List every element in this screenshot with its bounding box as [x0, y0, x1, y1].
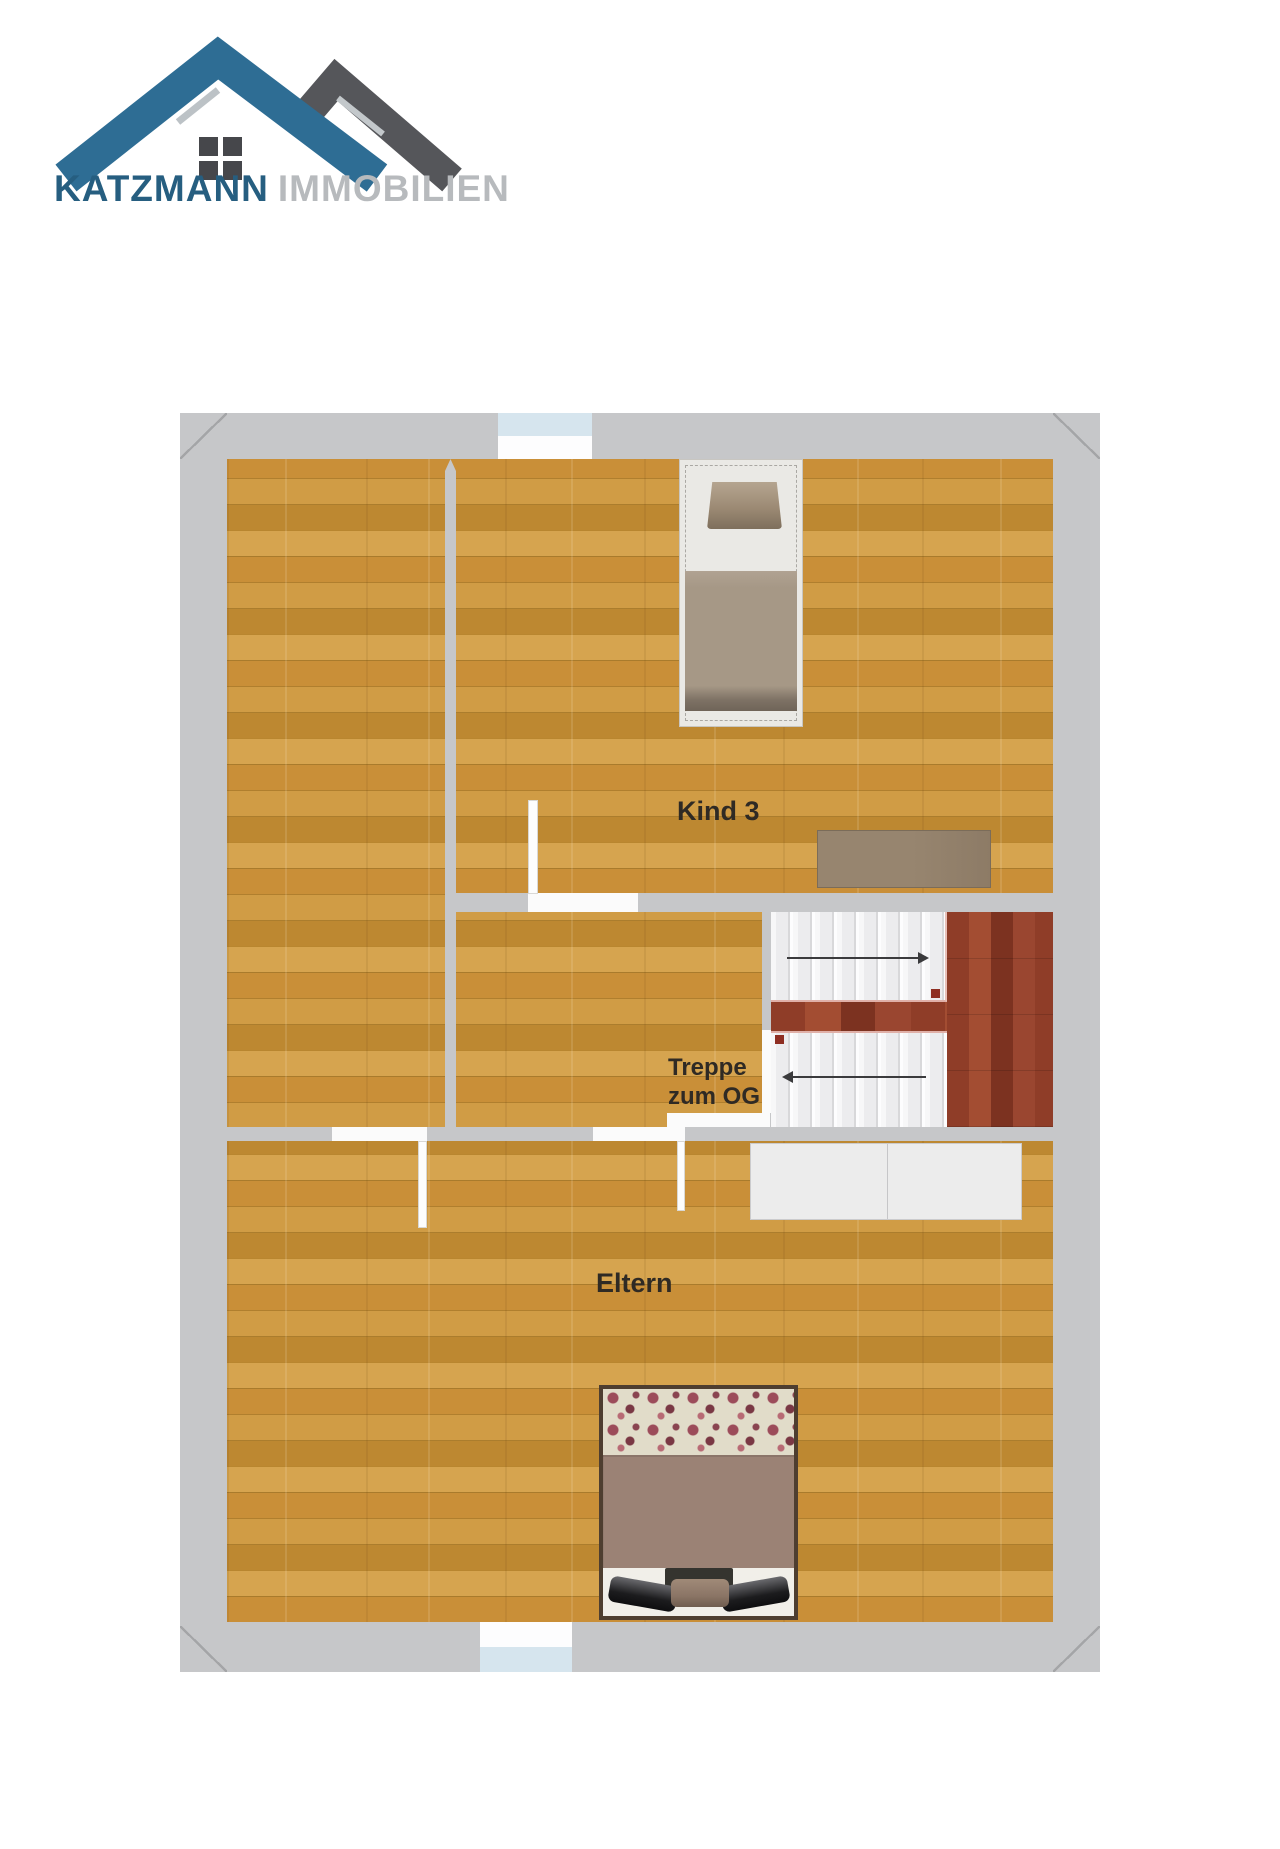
wall-left-room-divider — [445, 459, 456, 1127]
bed-pillow — [707, 482, 782, 529]
door-leaf-eltern-west — [418, 1141, 427, 1228]
floorplan-page: KATZMANNIMMOBILIEN — [0, 0, 1280, 1849]
room-label-treppe: Treppe zum OG — [668, 1053, 760, 1111]
wardrobe — [750, 1143, 1022, 1220]
room-label-treppe-line1: Treppe — [668, 1053, 760, 1082]
logo-type-text: IMMOBILIEN — [278, 168, 510, 209]
bed-floral-cover — [603, 1389, 794, 1455]
arrow-left-icon — [784, 1076, 926, 1078]
floorplan: Kind 3 Treppe zum OG Eltern — [180, 413, 1100, 1672]
stair-threshold — [667, 1113, 770, 1127]
stair-mid-landing — [771, 1002, 947, 1031]
door-leaf-kind3 — [528, 800, 538, 894]
corner-bevel-bottom-right — [1053, 1626, 1100, 1672]
logo-brand-text: KATZMANN — [54, 168, 269, 209]
bed-blanket — [685, 571, 797, 711]
stair-landing — [947, 912, 1053, 1127]
corner-bevel-top-right — [1053, 413, 1100, 459]
window-north — [498, 413, 592, 459]
bed-blanket — [603, 1455, 794, 1568]
window-sill — [480, 1622, 572, 1647]
window-sill — [498, 436, 592, 459]
bed-pillow-center — [671, 1579, 729, 1607]
room-label-eltern: Eltern — [596, 1268, 673, 1299]
stair-marker-dot — [931, 989, 940, 998]
window-south — [480, 1622, 572, 1672]
logo-wordmark: KATZMANNIMMOBILIEN — [54, 168, 510, 210]
door-opening-stairwell — [762, 1030, 771, 1113]
desk — [817, 830, 991, 888]
corner-bevel-bottom-left — [180, 1626, 227, 1672]
room-label-kind3: Kind 3 — [677, 796, 760, 827]
door-leaf-eltern-east — [677, 1141, 685, 1211]
door-opening-eltern-west — [332, 1127, 427, 1141]
wardrobe-divider — [887, 1144, 888, 1219]
door-opening-eltern-east — [593, 1127, 685, 1141]
window-glass — [498, 413, 592, 436]
single-bed — [679, 459, 803, 727]
window-glass — [480, 1647, 572, 1672]
corner-bevel-top-left — [180, 413, 227, 459]
double-bed — [599, 1385, 798, 1620]
door-opening-kind3 — [528, 893, 638, 912]
stair-marker-dot — [775, 1035, 784, 1044]
arrow-right-icon — [787, 957, 927, 959]
room-label-treppe-line2: zum OG — [668, 1082, 760, 1111]
company-logo: KATZMANNIMMOBILIEN — [38, 28, 468, 218]
stair-flight-down — [771, 1031, 947, 1127]
